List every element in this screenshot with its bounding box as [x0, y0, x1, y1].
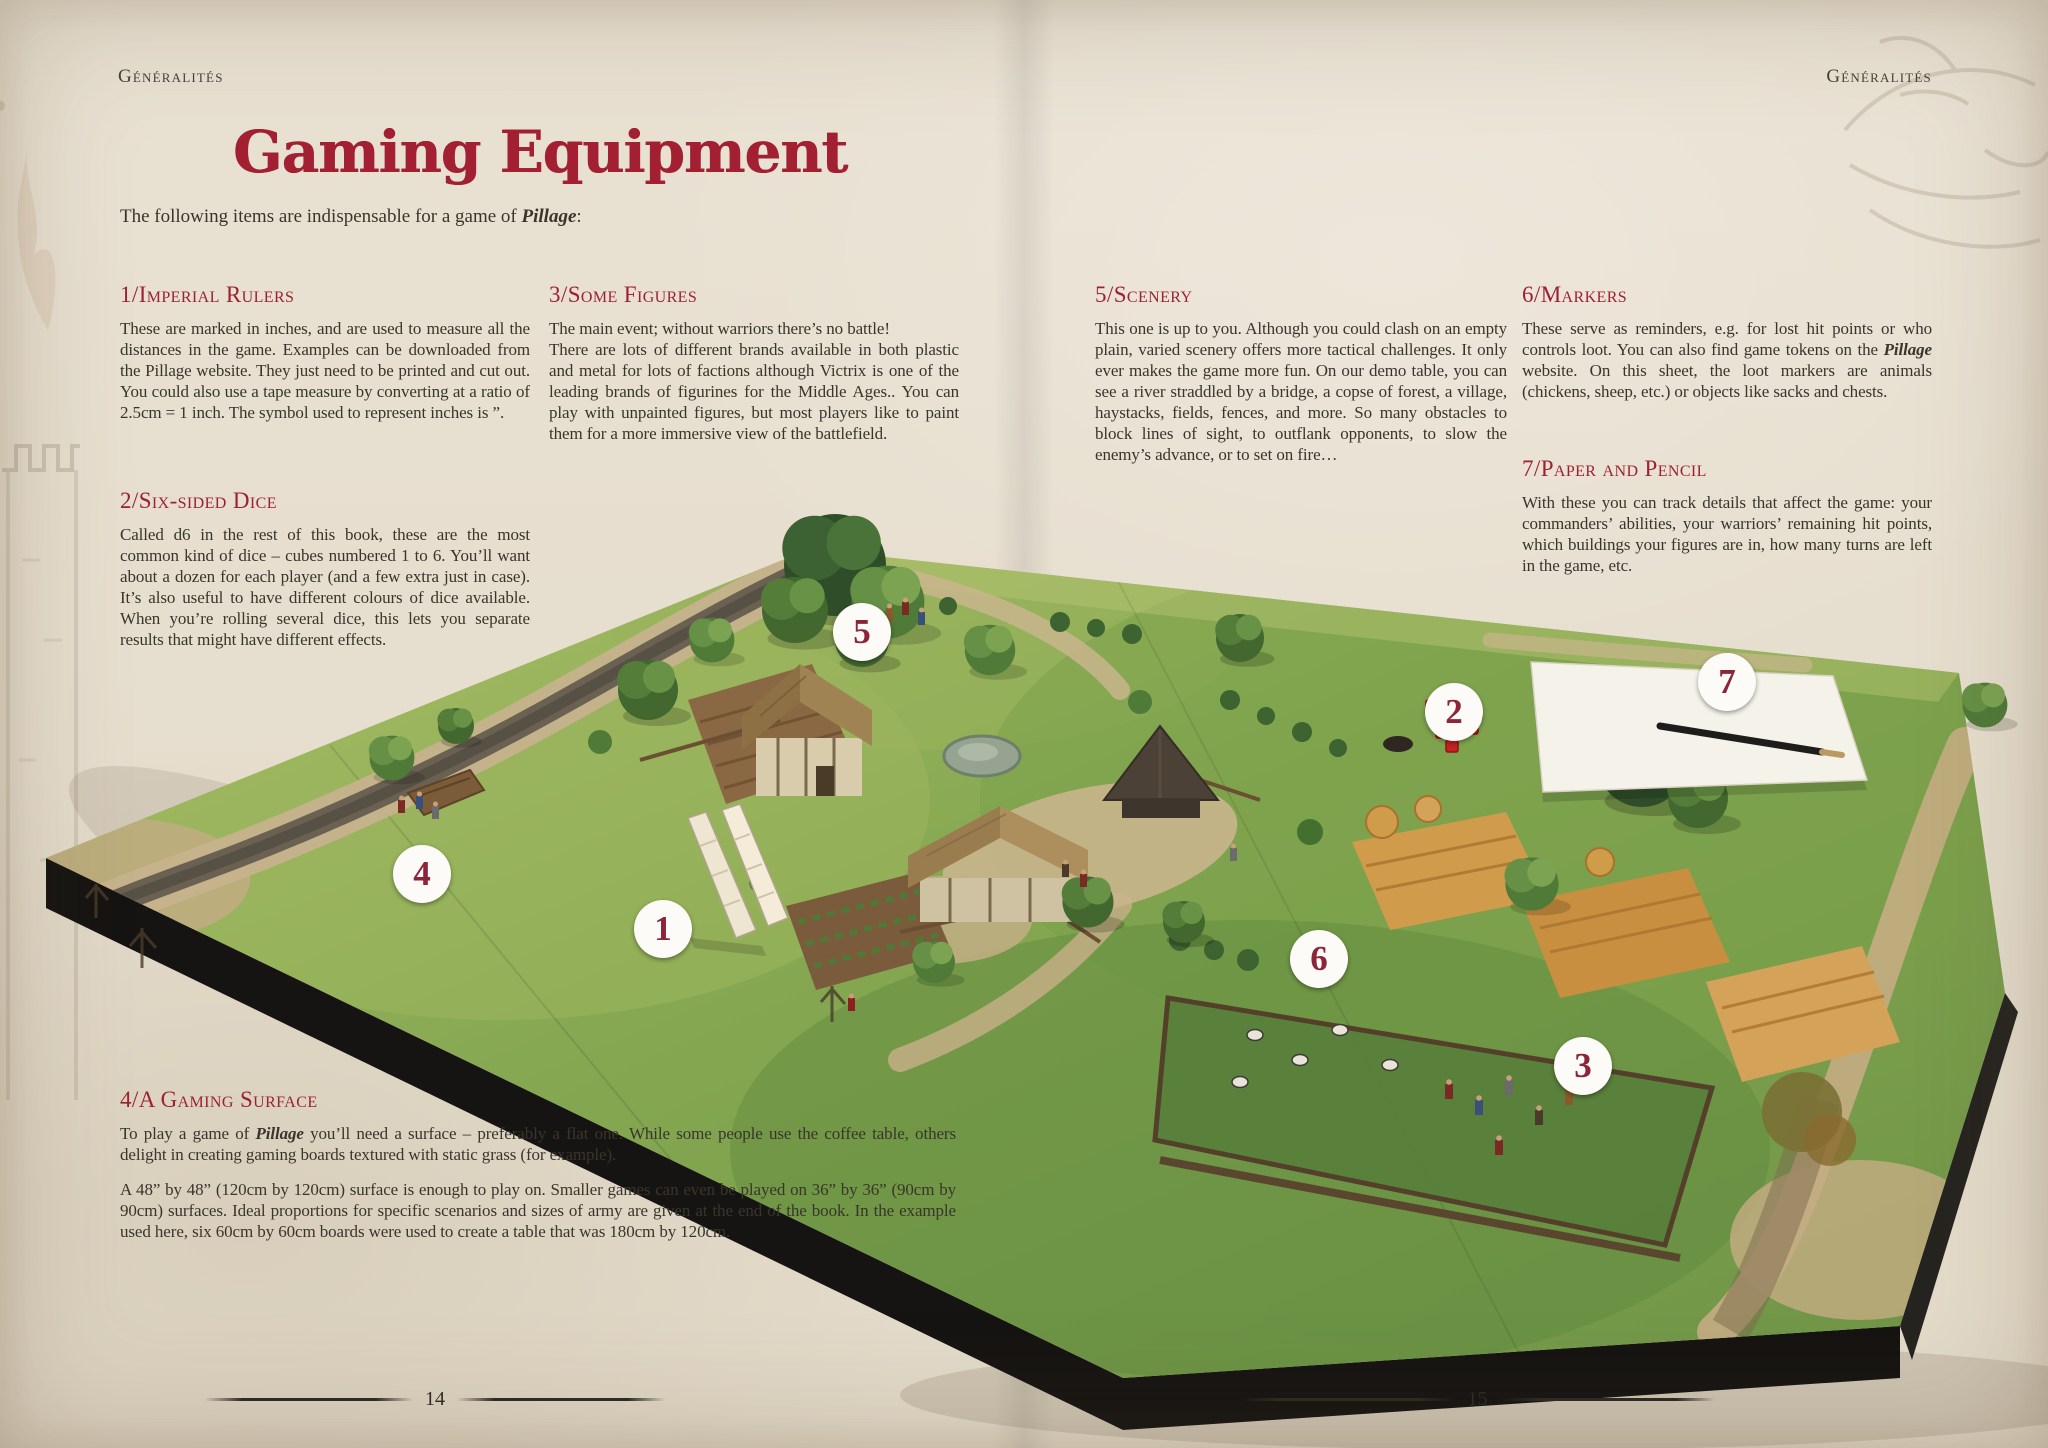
photo-marker-6: 6: [1290, 930, 1348, 988]
footer-left-page: 14: [205, 1388, 665, 1411]
section-body-1: These are marked in inches, and are used…: [120, 318, 530, 423]
section-body-3: There are lots of different brands avail…: [549, 339, 959, 444]
photo-marker-2: 2: [1425, 683, 1483, 741]
section-heading-5: 5/Scenery: [1095, 282, 1507, 308]
intro-game-name: Pillage: [522, 206, 577, 227]
section-body-4-game-name: Pillage: [255, 1124, 303, 1143]
section-heading-2: 2/Six-sided Dice: [120, 488, 530, 514]
section-body-6: These serve as reminders, e.g. for lost …: [1522, 318, 1932, 402]
intro-pre: The following items are indispensable fo…: [120, 206, 522, 227]
photo-marker-5: 5: [833, 603, 891, 661]
section-body-5: This one is up to you. Although you coul…: [1095, 318, 1507, 465]
section-body-4-pre: To play a game of: [120, 1124, 255, 1143]
footer-rule: [205, 1398, 413, 1401]
section-imperial-rulers: 1/Imperial Rulers These are marked in in…: [120, 282, 530, 423]
page-number-right: 15: [1468, 1388, 1488, 1411]
section-heading-1: 1/Imperial Rulers: [120, 282, 530, 308]
section-markers: 6/Markers These serve as reminders, e.g.…: [1522, 282, 1932, 402]
section-heading-6: 6/Markers: [1522, 282, 1932, 308]
running-header-left: Généralités: [118, 66, 224, 88]
page-title: Gaming Equipment: [120, 118, 960, 186]
intro-line: The following items are indispensable fo…: [120, 206, 880, 228]
horse-figure: [1383, 736, 1413, 752]
section-body-4-p2: A 48” by 48” (120cm by 120cm) surface is…: [120, 1179, 956, 1242]
photo-marker-7: 7: [1698, 653, 1756, 711]
section-body-6-game-name: Pillage: [1884, 340, 1932, 359]
section-heading-7: 7/Paper and Pencil: [1522, 456, 1932, 482]
section-scenery: 5/Scenery This one is up to you. Althoug…: [1095, 282, 1507, 465]
section-body-6-post: website. On this sheet, the loot markers…: [1522, 361, 1932, 401]
footer-rule: [457, 1398, 665, 1401]
section-body-3-line1: The main event; without warriors there’s…: [549, 318, 959, 339]
section-heading-3: 3/Some Figures: [549, 282, 959, 308]
rulebook-spread: Généralités Généralités Gaming Equipment…: [0, 0, 2048, 1448]
photo-marker-1: 1: [634, 900, 692, 958]
section-body-6-pre: These serve as reminders, e.g. for lost …: [1522, 319, 1932, 359]
footer-rule: [1500, 1398, 1716, 1401]
section-gaming-surface: 4/A Gaming Surface To play a game of Pil…: [120, 1087, 956, 1242]
photo-marker-4: 4: [393, 845, 451, 903]
running-header-right: Généralités: [1826, 66, 1932, 88]
section-six-sided-dice: 2/Six-sided Dice Called d6 in the rest o…: [120, 488, 530, 650]
section-body-4-p1: To play a game of Pillage you’ll need a …: [120, 1123, 956, 1165]
section-body-2: Called d6 in the rest of this book, thes…: [120, 524, 530, 650]
footer-rule: [1240, 1398, 1456, 1401]
section-body-7: With these you can track details that af…: [1522, 492, 1932, 576]
footer-right-page: 15: [1240, 1388, 1715, 1411]
pond: [944, 736, 1020, 776]
castle-sketch-decoration: [2, 135, 80, 1100]
section-some-figures: 3/Some Figures The main event; without w…: [549, 282, 959, 444]
photo-marker-3: 3: [1554, 1037, 1612, 1095]
section-paper-and-pencil: 7/Paper and Pencil With these you can tr…: [1522, 456, 1932, 576]
section-heading-4: 4/A Gaming Surface: [120, 1087, 956, 1113]
intro-post: :: [576, 206, 581, 227]
page-number-left: 14: [425, 1388, 445, 1411]
